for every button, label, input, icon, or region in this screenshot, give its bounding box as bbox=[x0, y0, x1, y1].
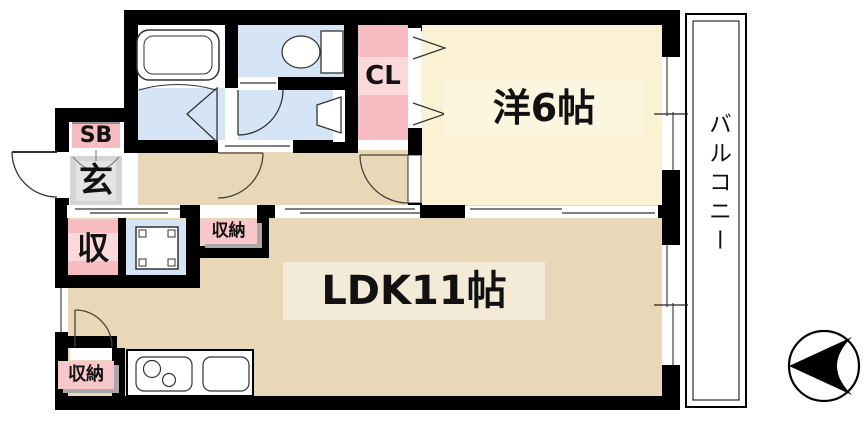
label-shoebox: SB bbox=[72, 122, 120, 149]
balcony-window-west bbox=[654, 57, 688, 170]
label-balcony: バルコニー bbox=[701, 112, 733, 322]
wash-basin-icon bbox=[317, 90, 345, 142]
washroom-inner-door-icon bbox=[238, 90, 283, 135]
washing-machine-icon bbox=[136, 227, 178, 269]
kitchen-counter bbox=[127, 350, 253, 396]
side-window bbox=[55, 288, 68, 332]
label-storage-hall: 収納 bbox=[200, 219, 257, 244]
plan-linework bbox=[0, 0, 863, 424]
room-label-ldk: LDK11帖 bbox=[283, 262, 545, 320]
toilet-icon bbox=[282, 31, 343, 73]
bath-folding-door-icon bbox=[187, 88, 217, 142]
label-entrance: 玄 bbox=[70, 158, 122, 204]
western-room-door-icon bbox=[360, 155, 408, 203]
kitchen-sink-icon bbox=[203, 357, 249, 391]
bathtub-icon bbox=[137, 30, 219, 90]
washroom-door-icon bbox=[218, 153, 263, 198]
room-label-western: 洋6帖 bbox=[444, 80, 644, 136]
room-label-closet-cl: CL bbox=[358, 57, 408, 95]
gas-stove-icon bbox=[136, 357, 192, 391]
label-storage-shu: 収 bbox=[68, 221, 118, 274]
floor-plan: 洋6帖 LDK11帖 CL SB 玄 収 収納 収納 バルコニー bbox=[0, 0, 863, 424]
entrance-door-icon bbox=[12, 152, 57, 197]
compass-north-icon bbox=[789, 331, 859, 401]
balcony-window-ldk bbox=[654, 245, 688, 365]
label-storage-kitchen: 収納 bbox=[58, 361, 114, 389]
